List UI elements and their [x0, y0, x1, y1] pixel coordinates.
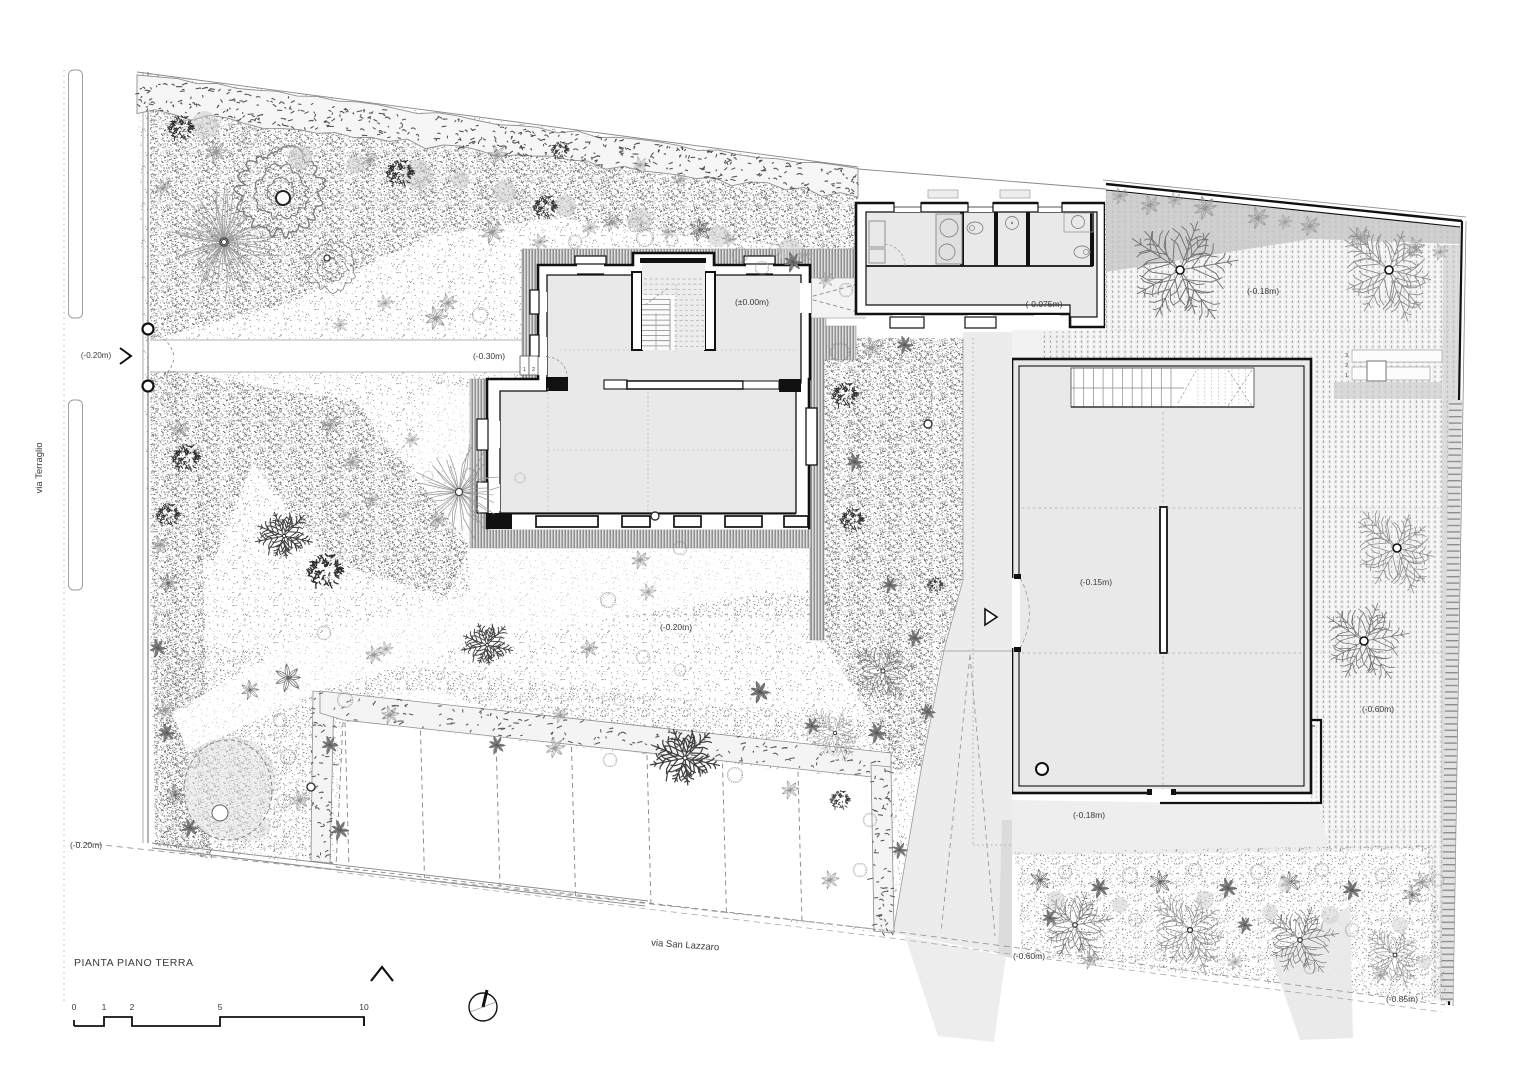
svg-text:(-0.20m): (-0.20m) [660, 622, 692, 632]
svg-text:(-0.20m): (-0.20m) [70, 840, 102, 850]
svg-text:(±0.00m): (±0.00m) [735, 297, 769, 307]
svg-text:(-0.18m): (-0.18m) [1073, 810, 1105, 820]
svg-text:via Terraglio: via Terraglio [34, 442, 45, 493]
svg-text:1: 1 [1345, 373, 1348, 379]
svg-text:2: 2 [130, 1002, 135, 1012]
svg-text:(-0.20m): (-0.20m) [81, 351, 112, 360]
svg-text:(-0.15m): (-0.15m) [1080, 577, 1112, 587]
svg-text:(-0.60m): (-0.60m) [1362, 704, 1394, 714]
svg-text:3: 3 [1345, 353, 1348, 359]
svg-text:(-0.30m): (-0.30m) [473, 351, 505, 361]
svg-text:1: 1 [102, 1002, 107, 1012]
svg-text:5: 5 [218, 1002, 223, 1012]
svg-text:2: 2 [1345, 363, 1348, 369]
svg-text:(-0.60m): (-0.60m) [1013, 951, 1045, 961]
svg-text:(-0.18m): (-0.18m) [1247, 286, 1279, 296]
svg-text:0: 0 [72, 1002, 77, 1012]
svg-text:2: 2 [532, 367, 535, 373]
svg-text:1: 1 [523, 367, 526, 373]
svg-text:PIANTA PIANO TERRA: PIANTA PIANO TERRA [74, 957, 193, 969]
svg-text:(-0.075m): (-0.075m) [1026, 299, 1063, 309]
svg-text:10: 10 [359, 1002, 369, 1012]
